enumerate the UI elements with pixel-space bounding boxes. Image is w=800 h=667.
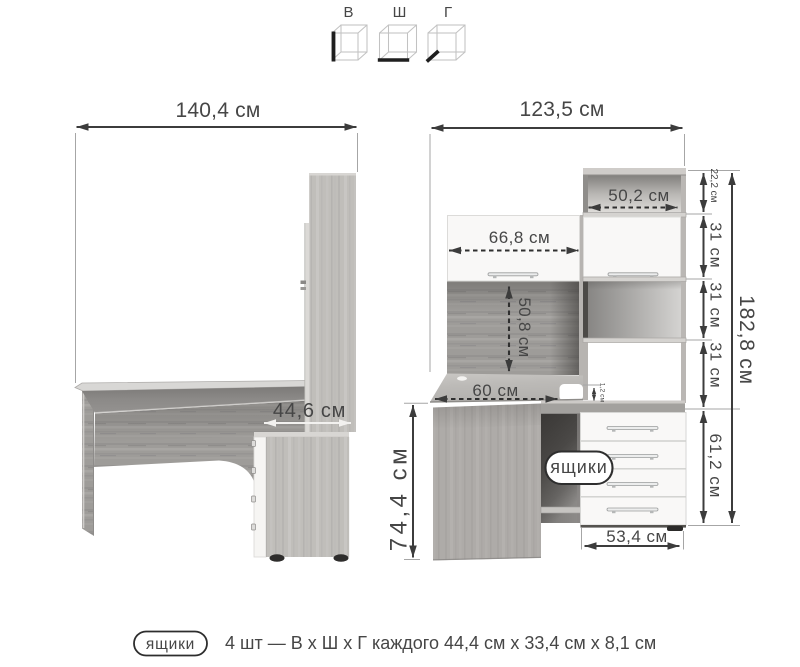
- svg-text:44,6 см: 44,6 см: [273, 400, 346, 422]
- svg-text:74,4 см: 74,4 см: [385, 445, 412, 551]
- svg-text:66,8 см: 66,8 см: [489, 228, 551, 247]
- svg-text:61,2 см: 61,2 см: [706, 434, 725, 499]
- svg-text:ящики: ящики: [550, 457, 608, 477]
- svg-text:В: В: [343, 4, 353, 21]
- svg-text:31 см: 31 см: [706, 342, 723, 388]
- svg-text:31 см: 31 см: [706, 282, 723, 328]
- svg-text:50,2 см: 50,2 см: [608, 186, 670, 205]
- svg-text:4 шт — В х Ш х Г каждого 44,4: 4 шт — В х Ш х Г каждого 44,4 см х 33,4 …: [225, 633, 656, 653]
- svg-text:Г: Г: [444, 4, 452, 21]
- svg-text:31 см: 31 см: [706, 222, 723, 268]
- svg-text:ящики: ящики: [146, 636, 195, 653]
- svg-text:1,2 см: 1,2 см: [599, 383, 606, 403]
- svg-text:53,4 см: 53,4 см: [606, 527, 668, 546]
- svg-text:60 см: 60 см: [472, 381, 518, 400]
- svg-text:140,4 см: 140,4 см: [176, 99, 261, 122]
- svg-text:Ш: Ш: [393, 4, 407, 21]
- svg-text:50,8 см: 50,8 см: [515, 297, 534, 357]
- svg-text:123,5 см: 123,5 см: [520, 98, 605, 121]
- svg-text:22,2 см: 22,2 см: [708, 168, 719, 202]
- svg-text:182,8 см: 182,8 см: [735, 295, 758, 385]
